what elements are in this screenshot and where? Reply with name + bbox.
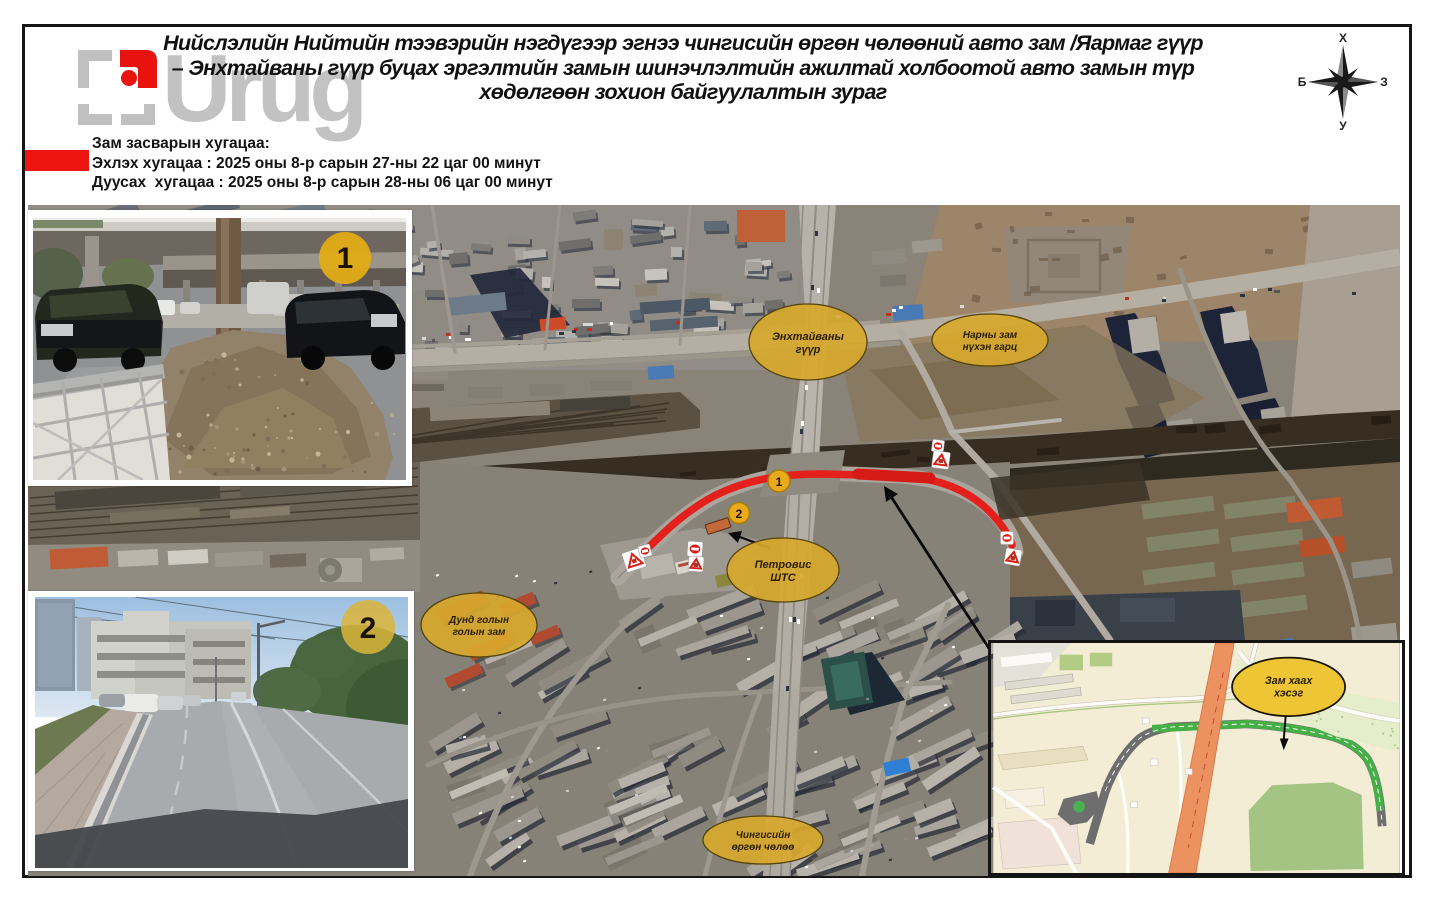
svg-text:хэсэг: хэсэг	[1273, 688, 1303, 700]
svg-text:нүхэн гарц: нүхэн гарц	[963, 342, 1018, 353]
svg-text:З: З	[1380, 75, 1388, 89]
svg-text:Чингисийн: Чингисийн	[736, 830, 791, 841]
svg-text:Нарны зам: Нарны зам	[963, 330, 1018, 341]
svg-text:Дунд голын: Дунд голын	[448, 615, 509, 626]
svg-text:1: 1	[337, 242, 354, 275]
svg-text:голын зам: голын зам	[453, 627, 506, 638]
svg-text:У: У	[1339, 119, 1347, 132]
svg-text:Х: Х	[1339, 32, 1347, 45]
svg-text:2: 2	[360, 612, 377, 645]
svg-text:Энхтайваны: Энхтайваны	[772, 331, 845, 343]
svg-text:ШТС: ШТС	[770, 572, 796, 584]
svg-text:Зам хаах: Зам хаах	[1265, 675, 1313, 687]
svg-text:гүүр: гүүр	[796, 344, 821, 356]
svg-text:Петровис: Петровис	[755, 559, 812, 571]
svg-text:1: 1	[776, 475, 783, 489]
svg-text:Б: Б	[1298, 75, 1307, 89]
svg-text:2: 2	[736, 507, 743, 521]
svg-text:өргөн чөлөө: өргөн чөлөө	[732, 842, 795, 853]
